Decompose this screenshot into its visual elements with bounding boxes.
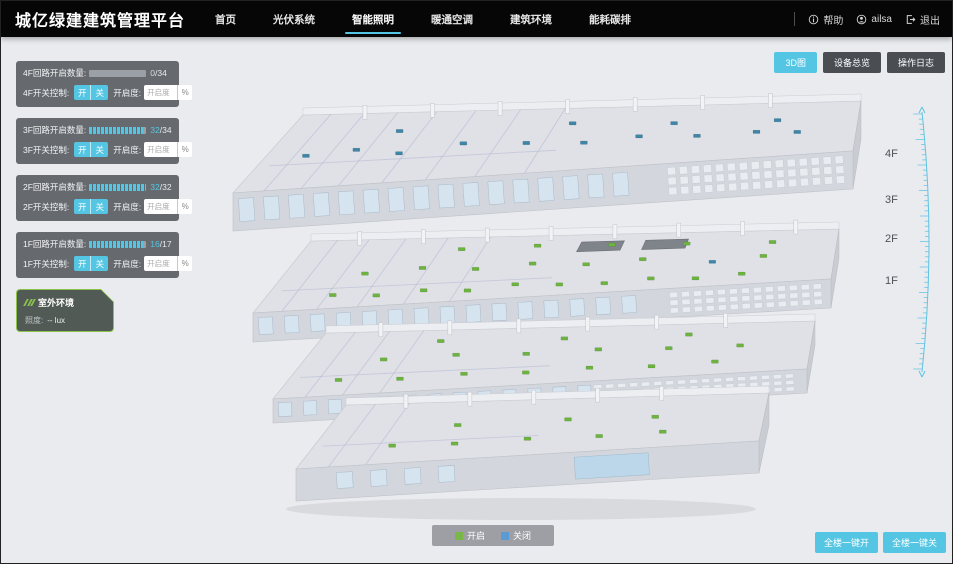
switch-control-label: 3F开关控制: xyxy=(23,144,69,156)
switch-control-row: 2F开关控制: 开 关 开启度: % xyxy=(23,199,172,214)
switch-on-button[interactable]: 开 xyxy=(74,199,91,214)
user-menu[interactable]: ailsa xyxy=(856,14,892,25)
switch-group: 开 关 xyxy=(74,142,108,157)
switch-group: 开 关 xyxy=(74,85,108,100)
all-floor-action-button[interactable]: 全楼一键关 xyxy=(883,532,946,553)
top-header: 城亿绿建建筑管理平台 首页光伏系统智能照明暖通空调建筑环境能耗碳排 帮助 ail… xyxy=(1,1,952,37)
nav-item[interactable]: 首页 xyxy=(215,7,236,32)
logout-button[interactable]: 退出 xyxy=(905,12,940,27)
dim-control: % xyxy=(144,85,192,100)
floor-scale-label: 1F xyxy=(885,275,898,287)
circuit-progress-fill xyxy=(89,241,143,248)
switch-control-label: 1F开关控制: xyxy=(23,258,69,270)
percent-button[interactable]: % xyxy=(177,85,192,100)
floor-control-panel: 3F回路开启数量: 32/34 3F开关控制: 开 关 开启度: % xyxy=(16,118,179,164)
signal-slashes-icon xyxy=(25,299,34,306)
switch-on-button[interactable]: 开 xyxy=(74,142,91,157)
circuit-count-row: 4F回路开启数量: 0/34 xyxy=(23,67,172,79)
circuit-progress-bar xyxy=(89,241,146,248)
floor-scale-label: 3F xyxy=(885,194,898,206)
floor-control-panel: 2F回路开启数量: 32/32 2F开关控制: 开 关 开启度: % xyxy=(16,175,179,221)
dim-control: % xyxy=(144,142,192,157)
legend-swatch xyxy=(501,532,509,540)
switch-control-label: 4F开关控制: xyxy=(23,87,69,99)
view-toolbar-button[interactable]: 设备总览 xyxy=(823,52,881,73)
view-toolbar-button[interactable]: 操作日志 xyxy=(887,52,945,73)
nav-item[interactable]: 光伏系统 xyxy=(273,7,315,32)
nav-item[interactable]: 暖通空调 xyxy=(431,7,473,32)
floor-scale-label: 4F xyxy=(885,148,898,160)
legend-item: 开启 xyxy=(455,529,485,542)
switch-on-button[interactable]: 开 xyxy=(74,256,91,271)
dim-control: % xyxy=(144,256,192,271)
circuit-count-label: 4F回路开启数量: xyxy=(23,67,86,79)
nav-item[interactable]: 智能照明 xyxy=(352,7,394,32)
switch-off-button[interactable]: 关 xyxy=(91,256,108,271)
circuit-progress-bar xyxy=(89,70,146,77)
nav-item[interactable]: 建筑环境 xyxy=(510,7,552,32)
circuit-count-label: 3F回路开启数量: xyxy=(23,124,86,136)
switch-control-row: 1F开关控制: 开 关 开启度: % xyxy=(23,256,172,271)
circuit-count-row: 1F回路开启数量: 16/17 xyxy=(23,238,172,250)
switch-on-button[interactable]: 开 xyxy=(74,85,91,100)
switch-group: 开 关 xyxy=(74,199,108,214)
help-icon xyxy=(808,14,819,25)
view-toolbar: 3D图设备总览操作日志 xyxy=(774,52,945,73)
circuit-progress-bar xyxy=(89,127,146,134)
dim-input[interactable] xyxy=(144,142,177,157)
dim-label: 开启度: xyxy=(113,201,141,213)
illuminance-unit: lux xyxy=(55,316,65,325)
switch-group: 开 关 xyxy=(74,256,108,271)
switch-control-row: 3F开关控制: 开 关 开启度: % xyxy=(23,142,172,157)
help-label: 帮助 xyxy=(823,12,843,27)
floor-control-panel: 4F回路开启数量: 0/34 4F开关控制: 开 关 开启度: % xyxy=(16,61,179,107)
logout-icon xyxy=(905,14,916,25)
bottom-actions: 全楼一键开全楼一键关 xyxy=(815,532,946,553)
percent-button[interactable]: % xyxy=(177,142,192,157)
dim-input[interactable] xyxy=(144,256,177,271)
header-divider xyxy=(794,12,795,26)
logout-label: 退出 xyxy=(920,12,940,27)
switch-control-label: 2F开关控制: xyxy=(23,201,69,213)
floor-control-panel: 1F回路开启数量: 16/17 1F开关控制: 开 关 开启度: % xyxy=(16,232,179,278)
circuit-count-value: 16/17 xyxy=(150,239,171,249)
floor-scale-ruler[interactable] xyxy=(907,104,947,380)
switch-off-button[interactable]: 关 xyxy=(91,142,108,157)
nav-item[interactable]: 能耗碳排 xyxy=(589,7,631,32)
dim-input[interactable] xyxy=(144,85,177,100)
switch-control-row: 4F开关控制: 开 关 开启度: % xyxy=(23,85,172,100)
outdoor-env-panel: 室外环境 照度:-- lux xyxy=(16,289,114,332)
app-title: 城亿绿建建筑管理平台 xyxy=(15,7,185,31)
dim-label: 开启度: xyxy=(113,87,141,99)
dim-label: 开启度: xyxy=(113,144,141,156)
circuit-count-label: 2F回路开启数量: xyxy=(23,181,86,193)
header-right: 帮助 ailsa 退出 xyxy=(794,12,940,27)
circuit-count-row: 2F回路开启数量: 32/32 xyxy=(23,181,172,193)
user-icon xyxy=(856,14,867,25)
status-legend: 开启关闭 xyxy=(432,525,554,546)
percent-button[interactable]: % xyxy=(177,256,192,271)
outdoor-env-title: 室外环境 xyxy=(38,296,74,309)
legend-item: 关闭 xyxy=(501,529,531,542)
switch-off-button[interactable]: 关 xyxy=(91,85,108,100)
dim-input[interactable] xyxy=(144,199,177,214)
app-root: 城亿绿建建筑管理平台 首页光伏系统智能照明暖通空调建筑环境能耗碳排 帮助 ail… xyxy=(0,0,953,564)
circuit-count-label: 1F回路开启数量: xyxy=(23,238,86,250)
dim-control: % xyxy=(144,199,192,214)
view-toolbar-button[interactable]: 3D图 xyxy=(774,52,817,73)
circuit-progress-fill xyxy=(89,184,146,191)
circuit-progress-fill xyxy=(89,127,143,134)
illuminance-value: -- xyxy=(47,316,52,325)
circuit-count-value: 0/34 xyxy=(150,68,167,78)
circuit-progress-bar xyxy=(89,184,146,191)
dim-label: 开启度: xyxy=(113,258,141,270)
floor-scale-label: 2F xyxy=(885,233,898,245)
switch-off-button[interactable]: 关 xyxy=(91,199,108,214)
circuit-count-row: 3F回路开启数量: 32/34 xyxy=(23,124,172,136)
illuminance-label: 照度: xyxy=(25,316,43,325)
help-button[interactable]: 帮助 xyxy=(808,12,843,27)
circuit-count-value: 32/34 xyxy=(150,125,171,135)
legend-swatch xyxy=(455,532,463,540)
main-nav: 首页光伏系统智能照明暖通空调建筑环境能耗碳排 xyxy=(215,7,631,32)
illuminance-row: 照度:-- lux xyxy=(25,315,105,326)
user-name: ailsa xyxy=(871,14,892,25)
outdoor-env-inner: 室外环境 照度:-- lux xyxy=(17,290,113,331)
percent-button[interactable]: % xyxy=(177,199,192,214)
circuit-count-value: 32/32 xyxy=(150,182,171,192)
all-floor-action-button[interactable]: 全楼一键开 xyxy=(815,532,878,553)
